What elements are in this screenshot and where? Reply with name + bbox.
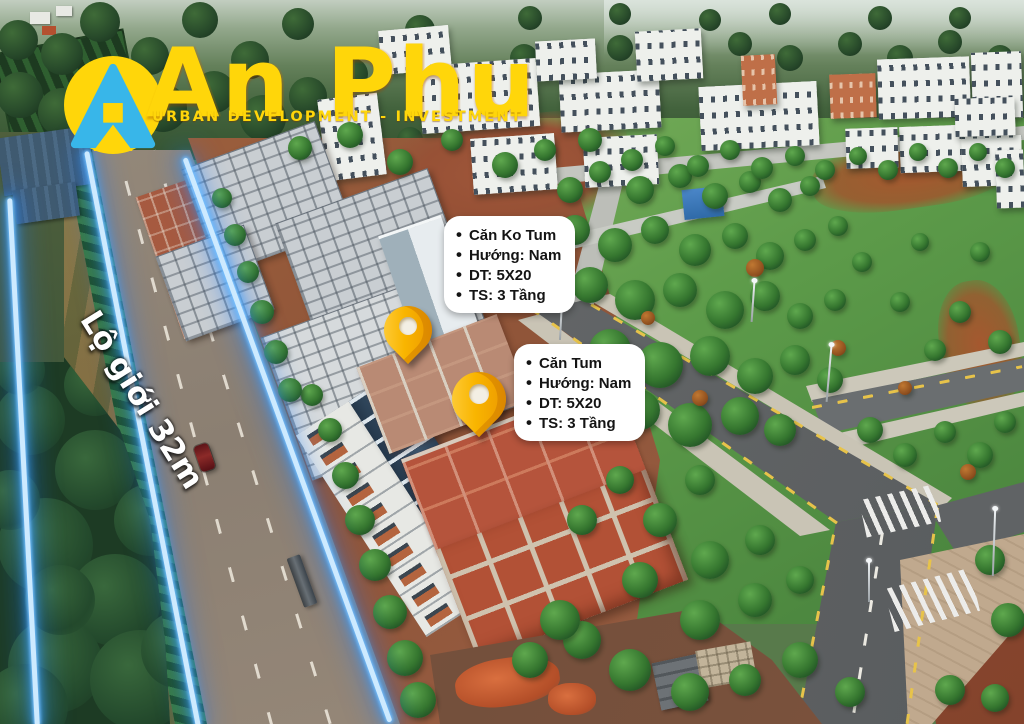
callout-direction: Hướng: Nam bbox=[526, 373, 631, 393]
street-light bbox=[751, 282, 756, 322]
map-pin-icon bbox=[384, 306, 432, 354]
brand-tagline: URBAN DEVELOPMENT - INVESTMENT bbox=[152, 109, 523, 125]
street-light bbox=[992, 510, 996, 576]
callout-title: Căn Tum bbox=[526, 353, 631, 373]
aerial-photo: An Phu URBAN DEVELOPMENT - INVESTMENT Lộ… bbox=[0, 0, 1024, 724]
callout-can-tum: Căn Tum Hướng: Nam DT: 5X20 TS: 3 Tầng bbox=[514, 344, 645, 441]
map-pin-hole bbox=[399, 317, 417, 335]
callout-area: DT: 5X20 bbox=[526, 393, 631, 413]
callout-floors: TS: 3 Tầng bbox=[456, 285, 561, 305]
street-light bbox=[826, 346, 833, 402]
callout-can-ko-tum: Căn Ko Tum Hướng: Nam DT: 5X20 TS: 3 Tần… bbox=[444, 216, 575, 313]
map-pin-hole bbox=[469, 384, 489, 404]
callout-area: DT: 5X20 bbox=[456, 265, 561, 285]
map-pin-icon bbox=[452, 372, 506, 426]
callout-title: Căn Ko Tum bbox=[456, 225, 561, 245]
street-light bbox=[868, 562, 870, 602]
callout-floors: TS: 3 Tầng bbox=[526, 413, 631, 433]
callout-direction: Hướng: Nam bbox=[456, 245, 561, 265]
